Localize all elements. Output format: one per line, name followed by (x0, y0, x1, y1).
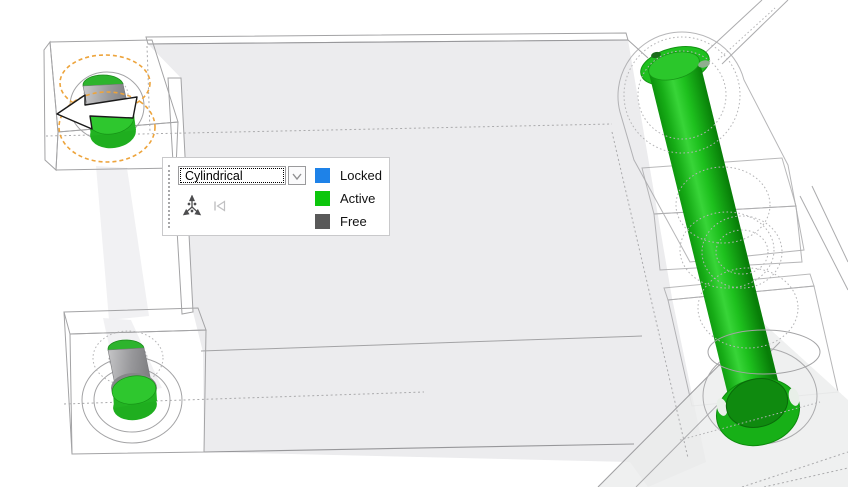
model-3d-view[interactable] (0, 0, 848, 487)
active-color-swatch (315, 191, 330, 206)
free-color-swatch (315, 214, 330, 229)
joint-triad-icon[interactable] (182, 195, 202, 216)
legend-row-active: Active (315, 191, 382, 206)
main-plate-part[interactable] (146, 33, 706, 487)
legend-row-locked: Locked (315, 168, 382, 183)
locked-color-swatch (315, 168, 330, 183)
legend-label: Active (340, 191, 375, 206)
joint-type-dropdown-button[interactable] (288, 166, 306, 185)
skip-to-start-icon[interactable] (212, 199, 227, 213)
bottom-left-pin[interactable] (82, 331, 182, 443)
legend-label: Locked (340, 168, 382, 183)
drag-handle[interactable] (168, 165, 170, 228)
joint-type-dropdown[interactable]: Cylindrical (178, 166, 286, 185)
joint-type-value: Cylindrical (185, 169, 243, 183)
joint-mini-toolbar[interactable]: Cylindrical (162, 157, 390, 236)
legend-label: Free (340, 214, 367, 229)
legend-row-free: Free (315, 214, 382, 229)
chevron-down-icon (290, 170, 304, 182)
dof-legend: Locked Active Free (315, 168, 382, 229)
cad-viewport[interactable]: Cylindrical (0, 0, 848, 487)
